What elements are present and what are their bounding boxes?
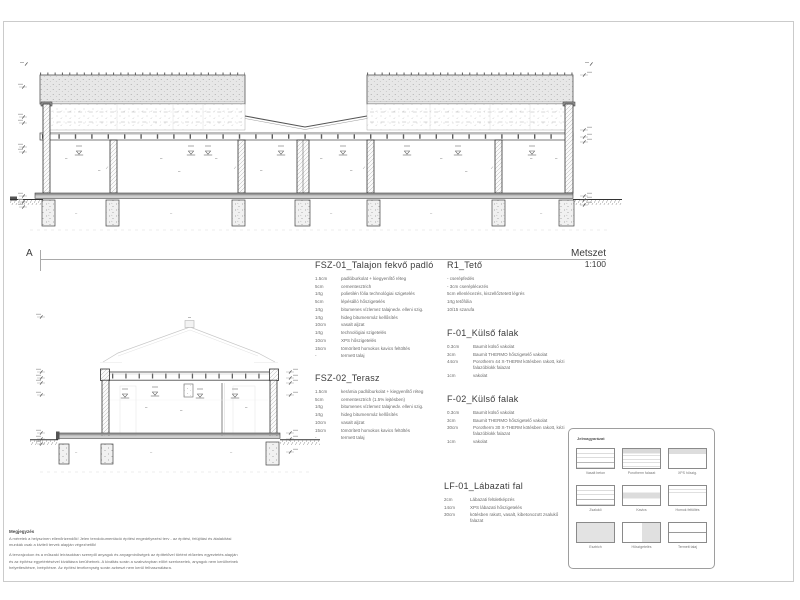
- spec-layer-row: 1rtg polietilén fólia technológiai szige…: [315, 291, 441, 297]
- dimension-marks-right: [580, 62, 593, 207]
- legend-item: Termett talaj: [668, 522, 707, 554]
- footings-cross: [59, 442, 279, 465]
- interior-openings-faint: [110, 384, 268, 436]
- spec-line: 5cm ellenlécezés, kiszellőztetett légrés: [447, 291, 575, 297]
- spec-lf01: LF-01_Lábazati fal 2cm Lábazati felületk…: [444, 481, 572, 526]
- spec-layer-row: 1rtg technológiai szigetelés: [315, 330, 441, 336]
- spec-r1: R1_Tető - cserépfedés - 3cm cseréplécezé…: [447, 260, 575, 315]
- spec-layer-row: 15cm tömörített homokos kavics feltöltés: [315, 428, 441, 434]
- hatch-swatch: [622, 485, 661, 506]
- floor-slab: [35, 193, 573, 198]
- legend-title: Jelmagyarázat: [577, 436, 605, 441]
- spec-f01: F-01_Külső falak 0.3cm Baumit külső vako…: [447, 328, 575, 381]
- spec-layer-row: 30cm Porotherm 30 X-THERM kötésben rakot…: [447, 425, 575, 437]
- spec-layers-f02: 0.3cm Baumit külső vakolat 3cm Baumit TH…: [447, 410, 575, 445]
- spec-layer-row: 44cm Porotherm 44 X-THERM kötésben rakot…: [447, 359, 575, 371]
- drawing-title: Metszet: [571, 248, 606, 259]
- legend-item: Homok feltöltés: [668, 485, 707, 517]
- ceiling-slab: [40, 133, 573, 140]
- dimension-marks-left: [18, 62, 28, 209]
- notes-title: Megjegyzés: [9, 529, 242, 534]
- annotation-specks: [65, 158, 557, 214]
- spec-layer-row: 1cm vakolat: [447, 439, 575, 445]
- roof-outline-faint: [100, 317, 278, 363]
- spec-layer-row: 1.5cm padlóburkolat + kiegyenlítő réteg: [315, 276, 441, 282]
- spec-layers-f01: 0.3cm Baumit külső vakolat 3cm Baumit TH…: [447, 344, 575, 379]
- spec-line: 10/15 szarufa: [447, 307, 575, 313]
- spec-layer-row: - termett talaj: [315, 353, 441, 359]
- spec-layer-row: 15cm tömörített homokos kavics feltöltés: [315, 346, 441, 352]
- notes-block: Megjegyzés A méretek a helyszínen ellenő…: [9, 529, 242, 575]
- spec-layer-row: 5cm cementesztrich: [315, 284, 441, 290]
- spec-line: 1rtg tetőfólia: [447, 299, 575, 305]
- spec-layer-row: 0.3cm Baumit külső vakolat: [447, 344, 575, 350]
- spec-layer-row: 2cm Lábazati felületképzés: [444, 497, 572, 503]
- spec-title-fsz01: FSZ-01_Talajon fekvő padló: [315, 260, 441, 271]
- spec-title-lf01: LF-01_Lábazati fal: [444, 481, 572, 492]
- drawing-sheet: { "titleblock": { "section_mark": "A", "…: [0, 0, 800, 600]
- spec-title-f02: F-02_Külső falak: [447, 394, 575, 405]
- legend-item: Vasalt beton: [576, 448, 615, 480]
- section-cut-tick: [40, 250, 41, 271]
- legend-item: Porotherm falazat: [622, 448, 661, 480]
- spec-layers-lf01: 2cm Lábazati felületképzés 14cm XPS lába…: [444, 497, 572, 525]
- spec-layer-row: 10cm vasalt aljzat: [315, 420, 441, 426]
- spec-f02: F-02_Külső falak 0.3cm Baumit külső vako…: [447, 394, 575, 447]
- hatch-swatch: [576, 448, 615, 469]
- spec-layer-row: 0.3cm Baumit külső vakolat: [447, 410, 575, 416]
- spec-layers-fsz01: 1.5cm padlóburkolat + kiegyenlítő réteg …: [315, 276, 441, 360]
- legend-item: XPS hőszig.: [668, 448, 707, 480]
- footings: [42, 200, 574, 226]
- hatch-swatch: [668, 448, 707, 469]
- spec-layer-row: 30cm kötésben rakott, vasalt, kibetonozo…: [444, 512, 572, 524]
- spec-layer-row: 1cm vakolat: [447, 373, 575, 379]
- legend-item: Kavics: [622, 485, 661, 517]
- ground-line: [10, 197, 622, 231]
- level-markers-cross: [121, 387, 239, 399]
- section-mark-label: A: [26, 248, 33, 259]
- spec-layer-row: 14cm XPS lábazati hőszigetelés: [444, 505, 572, 511]
- legend-item: Zsalukő: [576, 485, 615, 517]
- legend-item: Esztrich: [576, 522, 615, 554]
- spec-layer-row: 5cm cementesztrich (1.5% lejtésben): [315, 397, 441, 403]
- spec-layer-row: 1rtg bitumenes vízlemez talajnedv. ellen…: [315, 404, 441, 410]
- spec-layer-row: 3cm Baumit THERMO hőszigetelő vakolat: [447, 352, 575, 358]
- spec-layer-row: 5cm lépésálló hőszigetelés: [315, 299, 441, 305]
- spec-fsz01: FSZ-01_Talajon fekvő padló 1.5cm padlóbu…: [315, 260, 441, 361]
- ceiling-slab-cross: [101, 369, 279, 381]
- section-drawing-long: [10, 58, 622, 238]
- hatch-swatch: [668, 485, 707, 506]
- spec-layer-row: 1rtg hideg bitumenmáz kellősítés: [315, 412, 441, 418]
- notes-paragraph-1: A méretek a helyszínen ellenőrizendők! J…: [9, 536, 242, 548]
- spec-layer-row: 1rtg bitumenes vízlemez talajnedv. ellen…: [315, 307, 441, 313]
- spec-title-r1: R1_Tető: [447, 260, 575, 271]
- legend-item: Hőszigetelés: [622, 522, 661, 554]
- notes-paragraph-2: A tervrajzokon és a műszaki leírásokban …: [9, 552, 242, 571]
- roof-slab-right: [367, 74, 573, 104]
- legend-grid: Vasalt beton Porotherm falazat XPS hőszi…: [576, 448, 707, 554]
- spec-layers-fsz02: 1.5cm kerámia padlóburkolat + kiegyenlít…: [315, 389, 441, 442]
- spec-layer-row: - termett talaj: [315, 435, 441, 441]
- hatch-swatch: [576, 485, 615, 506]
- attic-band-right: [367, 104, 567, 130]
- spec-layer-row: 10cm vasalt aljzat: [315, 322, 441, 328]
- hatch-swatch: [576, 522, 615, 543]
- roof-slab-left: [40, 74, 245, 104]
- drawing-scale: 1:100: [585, 259, 606, 269]
- section-drawing-cross: [30, 302, 320, 502]
- spec-line: - 3cm cseréplécezés: [447, 284, 575, 290]
- spec-fsz02: FSZ-02_Terasz 1.5cm kerámia padlóburkola…: [315, 373, 441, 443]
- hatch-swatch: [668, 522, 707, 543]
- spec-title-f01: F-01_Külső falak: [447, 328, 575, 339]
- dimension-marks-cross-left: [36, 314, 45, 446]
- hatch-swatch: [622, 522, 661, 543]
- spec-layer-row: 3cm Baumit THERMO hőszigetelő vakolat: [447, 418, 575, 424]
- attic-band-left: [43, 104, 245, 130]
- floor-slab-cross: [56, 432, 280, 440]
- spec-title-fsz02: FSZ-02_Terasz: [315, 373, 441, 384]
- hatch-swatch: [622, 448, 661, 469]
- roof-valley: [245, 116, 367, 130]
- material-legend: Jelmagyarázat Vasalt beton Porotherm fal…: [568, 428, 715, 569]
- spec-line: - cserépfedés: [447, 276, 575, 282]
- spec-layer-row: 1.5cm kerámia padlóburkolat + kiegyenlít…: [315, 389, 441, 395]
- spec-lines-r1: - cserépfedés - 3cm cseréplécezés 5cm el…: [447, 276, 575, 313]
- spec-layer-row: 1rtg hideg bitumenmáz kellősítés: [315, 315, 441, 321]
- spec-layer-row: 10cm XPS hőszigetelés: [315, 338, 441, 344]
